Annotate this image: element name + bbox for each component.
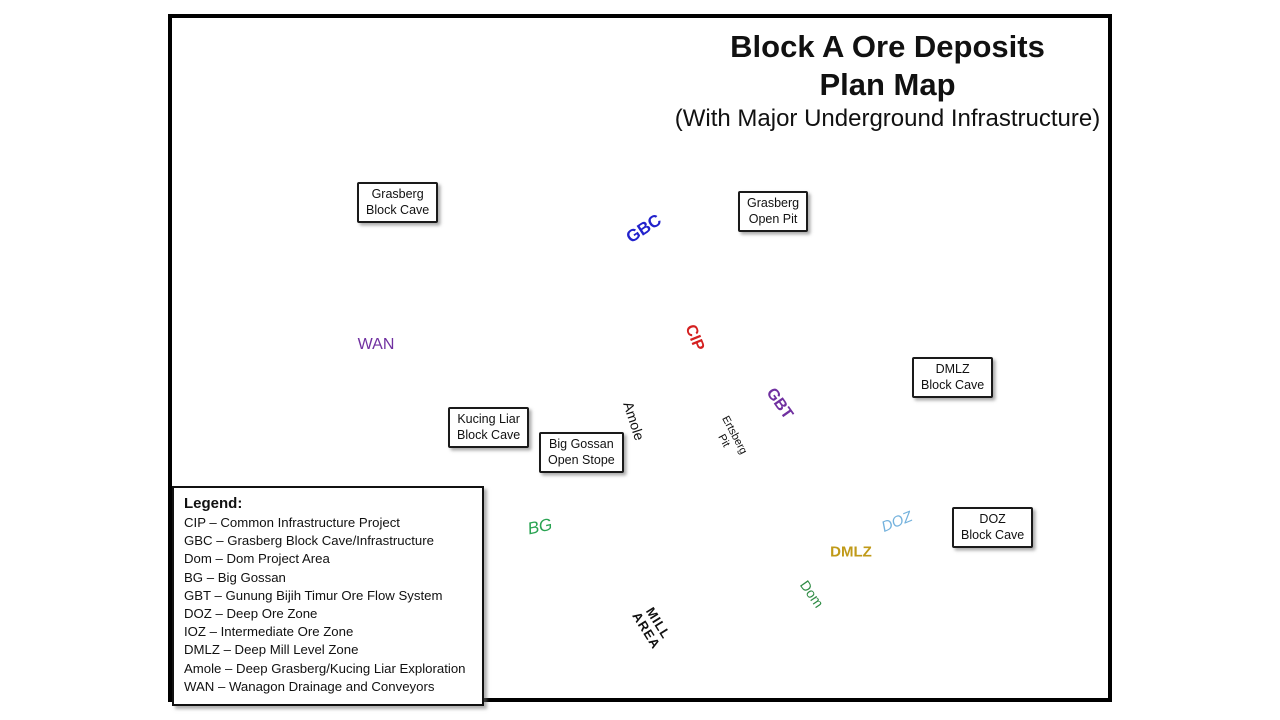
callout-doz-block-cave: DOZ Block Cave: [952, 507, 1033, 548]
map-title-block: Block A Ore Deposits Plan Map (With Majo…: [655, 28, 1120, 134]
map-title-line3: (With Major Underground Infrastructure): [655, 104, 1120, 134]
callout-grasberg-open-pit-line2: Open Pit: [747, 212, 799, 228]
legend-item-ioz: IOZ – Intermediate Ore Zone: [184, 623, 472, 641]
legend-box: Legend: CIP – Common Infrastructure Proj…: [172, 486, 484, 706]
callout-kucing-liar-line1: Kucing Liar: [457, 412, 520, 428]
map-title-line2: Plan Map: [655, 65, 1120, 104]
callout-kucing-liar-block-cave: Kucing Liar Block Cave: [448, 407, 529, 448]
legend-item-cip: CIP – Common Infrastructure Project: [184, 514, 472, 532]
legend-item-wan: WAN – Wanagon Drainage and Conveyors: [184, 678, 472, 696]
callout-doz-block-cave-line2: Block Cave: [961, 528, 1024, 544]
callout-grasberg-block-cave: Grasberg Block Cave: [357, 182, 438, 223]
callout-doz-block-cave-line1: DOZ: [961, 512, 1024, 528]
map-label-dmlz: DMLZ: [830, 544, 872, 561]
callout-dmlz-block-cave-line2: Block Cave: [921, 378, 984, 394]
plan-map-page: N 0 1000 METERS Block A Ore Deposits Pla…: [0, 0, 1280, 720]
legend-item-dmlz: DMLZ – Deep Mill Level Zone: [184, 641, 472, 659]
legend-item-gbc: GBC – Grasberg Block Cave/Infrastructure: [184, 532, 472, 550]
callout-big-gossan-open-stope: Big Gossan Open Stope: [539, 432, 624, 473]
callout-dmlz-block-cave-line1: DMLZ: [921, 362, 984, 378]
legend-item-amole: Amole – Deep Grasberg/Kucing Liar Explor…: [184, 660, 472, 678]
callout-dmlz-block-cave: DMLZ Block Cave: [912, 357, 993, 398]
callout-grasberg-open-pit-line1: Grasberg: [747, 196, 799, 212]
callout-grasberg-open-pit: Grasberg Open Pit: [738, 191, 808, 232]
legend-item-doz: DOZ – Deep Ore Zone: [184, 605, 472, 623]
callout-big-gossan-line1: Big Gossan: [548, 437, 615, 453]
callout-grasberg-block-cave-line1: Grasberg: [366, 187, 429, 203]
callout-big-gossan-line2: Open Stope: [548, 453, 615, 469]
callout-kucing-liar-line2: Block Cave: [457, 428, 520, 444]
legend-item-bg: BG – Big Gossan: [184, 569, 472, 587]
map-label-wan: WAN: [358, 336, 395, 354]
map-title-line1: Block A Ore Deposits: [655, 28, 1120, 65]
legend-item-gbt: GBT – Gunung Bijih Timur Ore Flow System: [184, 587, 472, 605]
legend-item-dom: Dom – Dom Project Area: [184, 550, 472, 568]
legend-heading: Legend:: [184, 494, 472, 514]
callout-grasberg-block-cave-line2: Block Cave: [366, 203, 429, 219]
